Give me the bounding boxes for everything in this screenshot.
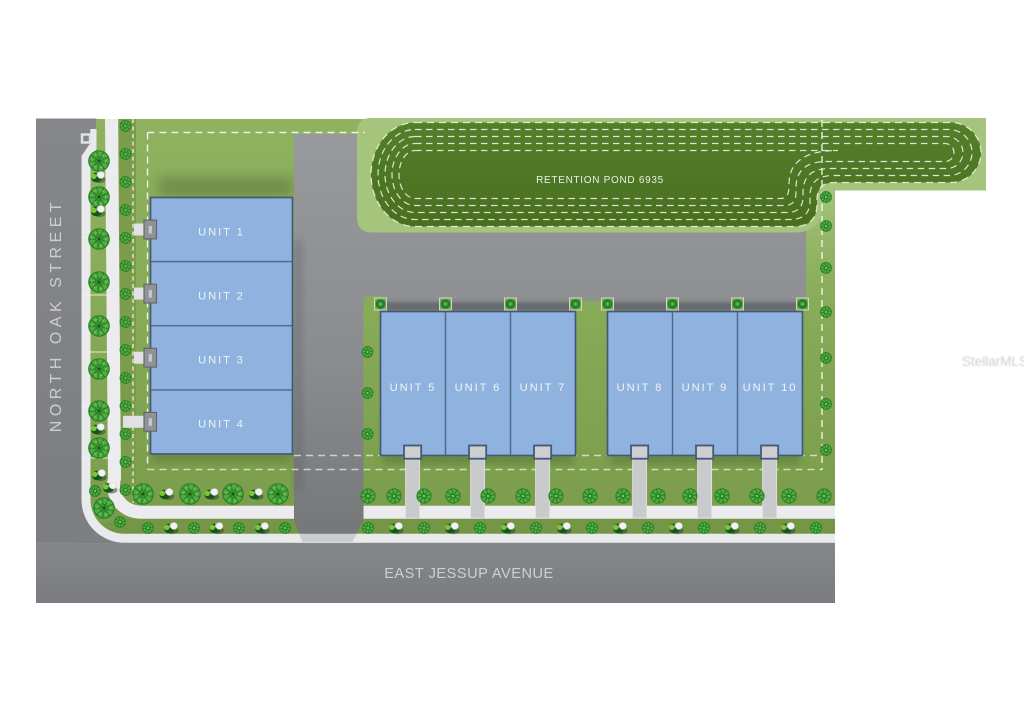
svg-text:UNIT 1: UNIT 1 xyxy=(198,227,245,239)
svg-text:StellarMLS: StellarMLS xyxy=(962,354,1024,369)
svg-text:UNIT 9: UNIT 9 xyxy=(682,382,729,394)
svg-text:UNIT 5: UNIT 5 xyxy=(390,382,437,394)
svg-text:NORTH OAK STREET: NORTH OAK STREET xyxy=(48,198,65,432)
svg-text:EAST JESSUP AVENUE: EAST JESSUP AVENUE xyxy=(384,566,554,582)
svg-text:UNIT 3: UNIT 3 xyxy=(198,355,245,367)
svg-text:UNIT 7: UNIT 7 xyxy=(520,382,567,394)
svg-text:UNIT 6: UNIT 6 xyxy=(455,382,502,394)
svg-text:UNIT 2: UNIT 2 xyxy=(198,291,245,303)
svg-text:UNIT 8: UNIT 8 xyxy=(617,382,664,394)
svg-text:RETENTION POND 6935: RETENTION POND 6935 xyxy=(536,175,664,186)
svg-text:UNIT 4: UNIT 4 xyxy=(198,419,245,431)
svg-text:UNIT 10: UNIT 10 xyxy=(743,382,798,394)
